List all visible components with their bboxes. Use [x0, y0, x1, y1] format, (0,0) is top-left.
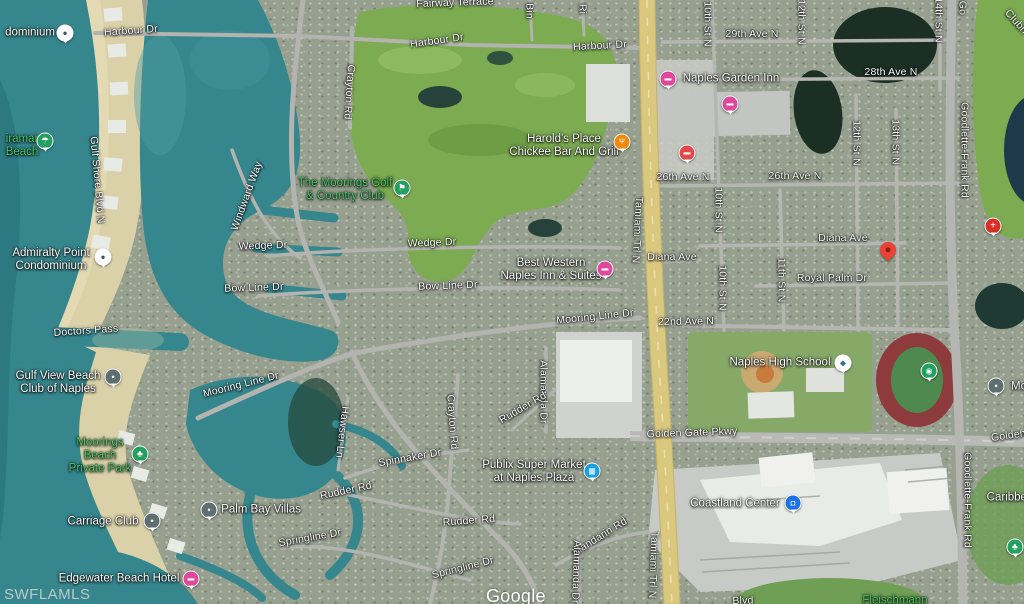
icon-tail: [926, 377, 932, 384]
satellite-map-canvas[interactable]: Fairway TerraceHarbour DrHarbour DrHarbo…: [0, 0, 1024, 604]
icon-tail: [602, 275, 608, 282]
gray-pin-icon[interactable]: ●: [144, 513, 161, 530]
lodging-icon[interactable]: ▬: [660, 71, 677, 88]
red-poi-icon[interactable]: ▬: [679, 145, 696, 162]
gray-pin-icon[interactable]: ●: [201, 502, 218, 519]
icon-tail: [684, 159, 690, 166]
school-icon[interactable]: ◆: [835, 355, 852, 372]
lodging-icon[interactable]: ▬: [597, 261, 614, 278]
icon-tail: [589, 477, 595, 484]
bag-icon[interactable]: ◘: [785, 495, 802, 512]
icon-tail: [42, 147, 48, 154]
mls-watermark: SWFLAMLS: [4, 586, 91, 603]
icon-tail: [188, 585, 194, 592]
lodging-icon[interactable]: ▬: [722, 96, 739, 113]
icon-tail: [1012, 553, 1018, 560]
icon-tail: [100, 263, 106, 270]
icon-tail: [62, 39, 68, 46]
lodging-icon[interactable]: ▬: [183, 571, 200, 588]
sports-icon[interactable]: ◉: [921, 363, 938, 380]
park-icon[interactable]: ♣: [132, 446, 149, 463]
icon-tail: [990, 232, 996, 239]
map-icons-layer: ●▬▬☂Ψ▬⚑+●▬◆◉●●♣▦◘●●♣▬: [0, 0, 1024, 604]
icon-tail: [993, 392, 999, 399]
condo-pin-icon[interactable]: ●: [57, 25, 74, 42]
restaurant-icon[interactable]: Ψ: [614, 134, 631, 151]
icon-tail: [399, 194, 405, 201]
destination-marker-dot: [884, 246, 891, 253]
cart-icon[interactable]: ▦: [584, 463, 601, 480]
hospital-icon[interactable]: +: [985, 218, 1002, 235]
icon-tail: [790, 509, 796, 516]
beach-icon[interactable]: ☂: [37, 133, 54, 150]
condo-pin-icon[interactable]: ●: [95, 249, 112, 266]
destination-marker[interactable]: [877, 239, 900, 262]
icon-tail: [727, 110, 733, 117]
icon-tail: [137, 460, 143, 467]
gray-pin-icon[interactable]: ●: [988, 378, 1005, 395]
tree-icon[interactable]: ♣: [1007, 539, 1024, 556]
icon-tail: [149, 527, 155, 534]
gray-pin-icon[interactable]: ●: [105, 369, 122, 386]
icon-tail: [110, 383, 116, 390]
icon-tail: [665, 85, 671, 92]
golf-icon[interactable]: ⚑: [394, 180, 411, 197]
google-watermark: Google: [486, 586, 546, 604]
icon-tail: [206, 516, 212, 523]
icon-tail: [840, 369, 846, 376]
icon-tail: [619, 148, 625, 155]
